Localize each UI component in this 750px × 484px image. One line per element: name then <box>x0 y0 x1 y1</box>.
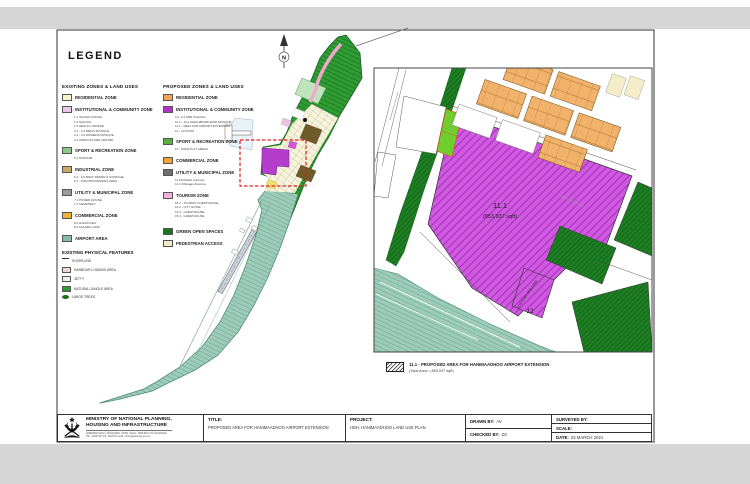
surveyed-by-label: SURVEYED BY: <box>556 417 588 422</box>
zone-label: COMMERCIAL ZONE <box>176 158 219 163</box>
legend-item-shoreline: SHORELINE <box>62 258 162 263</box>
zone-color-swatch <box>62 212 72 219</box>
zone-subitem: 12 - CUSTOM <box>175 129 271 134</box>
zone-subitem: 14.1 Dhiraagu Antenna <box>175 182 271 187</box>
drawn-by-value: AV <box>497 419 502 424</box>
title-label: TITLE: <box>208 417 341 422</box>
legend-item-sport-proposed: SPORT & RECREATION ZONE <box>163 138 271 145</box>
legend-title: LEGEND <box>68 50 123 62</box>
zone-color-swatch <box>163 138 173 145</box>
zone-color-swatch <box>62 147 72 154</box>
zone-subitems: 8.2 HUDHUVELI 8.3 LEASED LAND <box>74 221 162 230</box>
scale-row: SCALE: <box>552 424 651 433</box>
legend-item-commercial-proposed: COMMERCIAL ZONE <box>163 157 271 164</box>
land-use-plan-sheet: { "legend": { "title": "LEGEND", "existi… <box>0 0 750 484</box>
antenna-dot <box>303 118 307 122</box>
zone-label: RESIDENTIAL ZONE <box>176 95 218 100</box>
legend-item-jetty: JETTY <box>62 276 162 282</box>
project-cell: PROJECT: HDH. HANIMAADHOO LAND USE PLAN <box>346 415 466 441</box>
date-row: DATE: 22 MARCH 2021 <box>552 433 651 441</box>
legend-item-institutional-proposed: INSTITUTIONAL & COMMUNITY ZONE <box>163 106 271 113</box>
title-value: PROPOSED AREA FOR HANIMAADHOO AIRPORT EX… <box>208 425 341 430</box>
ministry-contact: TEL: 4004700 FAX: 4004701 email: urban@p… <box>86 435 172 438</box>
inset-area-size-label: (853,937 sqft) <box>483 214 517 220</box>
drawn-by-row: DRAWN BY: AV <box>466 415 551 429</box>
zone-subitems: 6.1 - 6.6 BOAT REPAIR & STORAGE 6.7 - FI… <box>74 175 162 184</box>
legend-item-jungle: NATURAL/JUNGLE AREA <box>62 286 162 292</box>
inset-customs-id-label: 12 <box>526 308 534 315</box>
hatch-swatch <box>386 362 404 372</box>
zone-subitem: 8.3 LEASED LAND <box>74 225 162 230</box>
zone-label: INDUSTRIAL ZONE <box>75 167 114 172</box>
zone-color-swatch <box>62 106 72 113</box>
legend-existing-column: EXISTING ZONES & LAND USES RESIDENTIAL Z… <box>62 84 162 299</box>
legend-existing-heading: EXISTING ZONES & LAND USES <box>62 84 162 89</box>
zone-color-swatch <box>163 192 173 199</box>
bottom-gray-band <box>0 444 750 484</box>
legend-item-airport-area: AIRPORT AREA <box>62 235 162 242</box>
zone-subitem: 15.4 - GUESTHOUSE <box>175 214 271 219</box>
project-value: HDH. HANIMAADHOO LAND USE PLAN <box>350 425 461 430</box>
zone-subitem: 5.1 STADIUM <box>74 156 162 161</box>
zone-label: RESIDENTIAL ZONE <box>75 95 117 100</box>
zone-subitem: 4.1 AGRICULTURE CENTRE <box>74 138 162 143</box>
legend-item-industrial-existing: INDUSTRIAL ZONE <box>62 166 162 173</box>
checked-by-value: ZS <box>502 432 508 437</box>
legend-item-tourism: TOURISM ZONE <box>163 192 271 199</box>
checked-by-label: CHECKED BY: <box>470 432 500 437</box>
zone-color-swatch <box>62 235 72 242</box>
legend-item-large-trees: LARGE TREES <box>62 295 162 299</box>
zone-label: UTILITY & MUNICIPAL ZONE <box>176 170 234 175</box>
legend-item-residential-proposed: RESIDENTIAL ZONE <box>163 94 271 101</box>
feature-label: LARGE TREES <box>72 295 95 299</box>
zone-label: INSTITUTIONAL & COMMUNITY ZONE <box>75 107 153 112</box>
zone-label: SPORT & RECREATION ZONE <box>75 148 137 153</box>
legend-item-sport-existing: SPORT & RECREATION ZONE <box>62 147 162 154</box>
legend-proposed-heading: PROPOSED ZONES & LAND USES <box>163 84 271 89</box>
zone-color-swatch <box>163 106 173 113</box>
tree-dot-swatch <box>62 295 69 299</box>
legend-item-pedestrian-access: PEDESTRIAN ACCESS <box>163 240 271 247</box>
inset-caption: 11.1 - PROPOSED AREA FOR HANIMAADHOO AIR… <box>386 362 549 373</box>
zone-color-swatch <box>163 240 173 247</box>
drawn-checked-cell: DRAWN BY: AV CHECKED BY: ZS <box>466 415 552 441</box>
legend-proposed-column: PROPOSED ZONES & LAND USES RESIDENTIAL Z… <box>163 84 271 247</box>
legend-item-harbour: HARBOUR LOADING AREA <box>62 267 162 273</box>
zone-label: COMMERCIAL ZONE <box>75 213 118 218</box>
zone-subitems: 13 - SAFE PLAY AREAS <box>175 147 271 152</box>
zone-color-swatch <box>62 166 72 173</box>
zone-subitem: 13 - SAFE PLAY AREAS <box>175 147 271 152</box>
zone-label: UTILITY & MUNICIPAL ZONE <box>75 190 133 195</box>
zone-subitems: 9.1- 9.2 PRE SCHOOL 10.1 - 10.2 NEIGHBOU… <box>175 115 271 133</box>
zone-subitem: 6.7 - FISH PROCESSING AREA <box>74 179 162 184</box>
top-gray-band <box>0 7 750 29</box>
zone-subitem: 7.2 CEMETERY <box>74 202 162 207</box>
checked-by-row: CHECKED BY: ZS <box>466 429 551 442</box>
zone-label: INSTITUTIONAL & COMMUNITY ZONE <box>176 107 254 112</box>
survey-scale-date-cell: SURVEYED BY: SCALE: DATE: 22 MARCH 2021 <box>552 415 651 441</box>
feature-color-swatch <box>62 276 71 282</box>
feature-label: SHORELINE <box>72 259 91 263</box>
title-cell: TITLE: PROPOSED AREA FOR HANIMAADHOO AIR… <box>204 415 346 441</box>
ministry-cell: MINISTRY OF NATIONAL PLANNING, HOUSING A… <box>58 415 204 441</box>
legend-item-residential-existing: RESIDENTIAL ZONE <box>62 94 162 101</box>
zone-color-swatch <box>163 228 173 235</box>
zone-subitems: 14 FM Radio Antenna 14.1 Dhiraagu Antenn… <box>175 178 271 187</box>
title-block: MINISTRY OF NATIONAL PLANNING, HOUSING A… <box>57 414 652 442</box>
north-label: N <box>282 56 286 62</box>
feature-label: JETTY <box>74 277 84 281</box>
zone-color-swatch <box>163 169 173 176</box>
legend-item-utility-proposed: UTILITY & MUNICIPAL ZONE <box>163 169 271 176</box>
feature-label: NATURAL/JUNGLE AREA <box>74 287 113 291</box>
date-value: 22 MARCH 2021 <box>571 435 603 440</box>
zone-label: TOURISM ZONE <box>176 193 209 198</box>
legend-item-utility-existing: UTILITY & MUNICIPAL ZONE <box>62 189 162 196</box>
surveyed-by-row: SURVEYED BY: <box>552 415 651 424</box>
ministry-logo <box>61 416 83 440</box>
zone-label: AIRPORT AREA <box>75 236 108 241</box>
feature-color-swatch <box>62 267 71 273</box>
zone-label: SPORT & RECREATION ZONE <box>176 139 238 144</box>
legend-item-commercial-existing: COMMERCIAL ZONE <box>62 212 162 219</box>
scale-label: SCALE: <box>556 426 572 431</box>
inset-map: 11.1 (853,937 sqft) CUSTOMS BUILDING 12 <box>374 25 652 352</box>
zone-subitems: 5.1 STADIUM <box>74 156 162 161</box>
zone-subitems: 15.1 - TOURIST GUESTHOUSE 15.2 - CITY HO… <box>175 201 271 219</box>
zone-color-swatch <box>62 94 72 101</box>
zone-color-swatch <box>163 94 173 101</box>
zone-subitems: 7.1 POWER HOUSE 7.2 CEMETERY <box>74 198 162 207</box>
inset-area-id-label: 11.1 <box>493 201 507 210</box>
shoreline-swatch <box>62 258 69 263</box>
caption-area: (Total Area = 853,937 sqft) <box>409 369 549 373</box>
legend-item-green-open-spaces: GREEN OPEN SPACES <box>163 228 271 235</box>
project-label: PROJECT: <box>350 417 461 422</box>
ministry-name-line2: HOUSING AND INFRASTRUCTURE <box>86 423 172 429</box>
zone-subitems: 1.1 ISLAND OFFICE 1.2 SCHOOL 1.3 HEALTH … <box>74 115 162 142</box>
zone-color-swatch <box>62 189 72 196</box>
zone-label: GREEN OPEN SPACES <box>176 229 223 234</box>
legend-physical-heading: EXISTING PHYSICAL FEATURES <box>62 250 162 255</box>
zone-color-swatch <box>163 157 173 164</box>
drawn-by-label: DRAWN BY: <box>470 419 495 424</box>
date-label: DATE: <box>556 435 569 440</box>
caption-title: 11.1 - PROPOSED AREA FOR HANIMAADHOO AIR… <box>409 362 549 367</box>
zone-label: PEDESTRIAN ACCESS <box>176 241 223 246</box>
feature-color-swatch <box>62 286 71 292</box>
feature-label: HARBOUR LOADING AREA <box>74 268 116 272</box>
legend-item-institutional-existing: INSTITUTIONAL & COMMUNITY ZONE <box>62 106 162 113</box>
